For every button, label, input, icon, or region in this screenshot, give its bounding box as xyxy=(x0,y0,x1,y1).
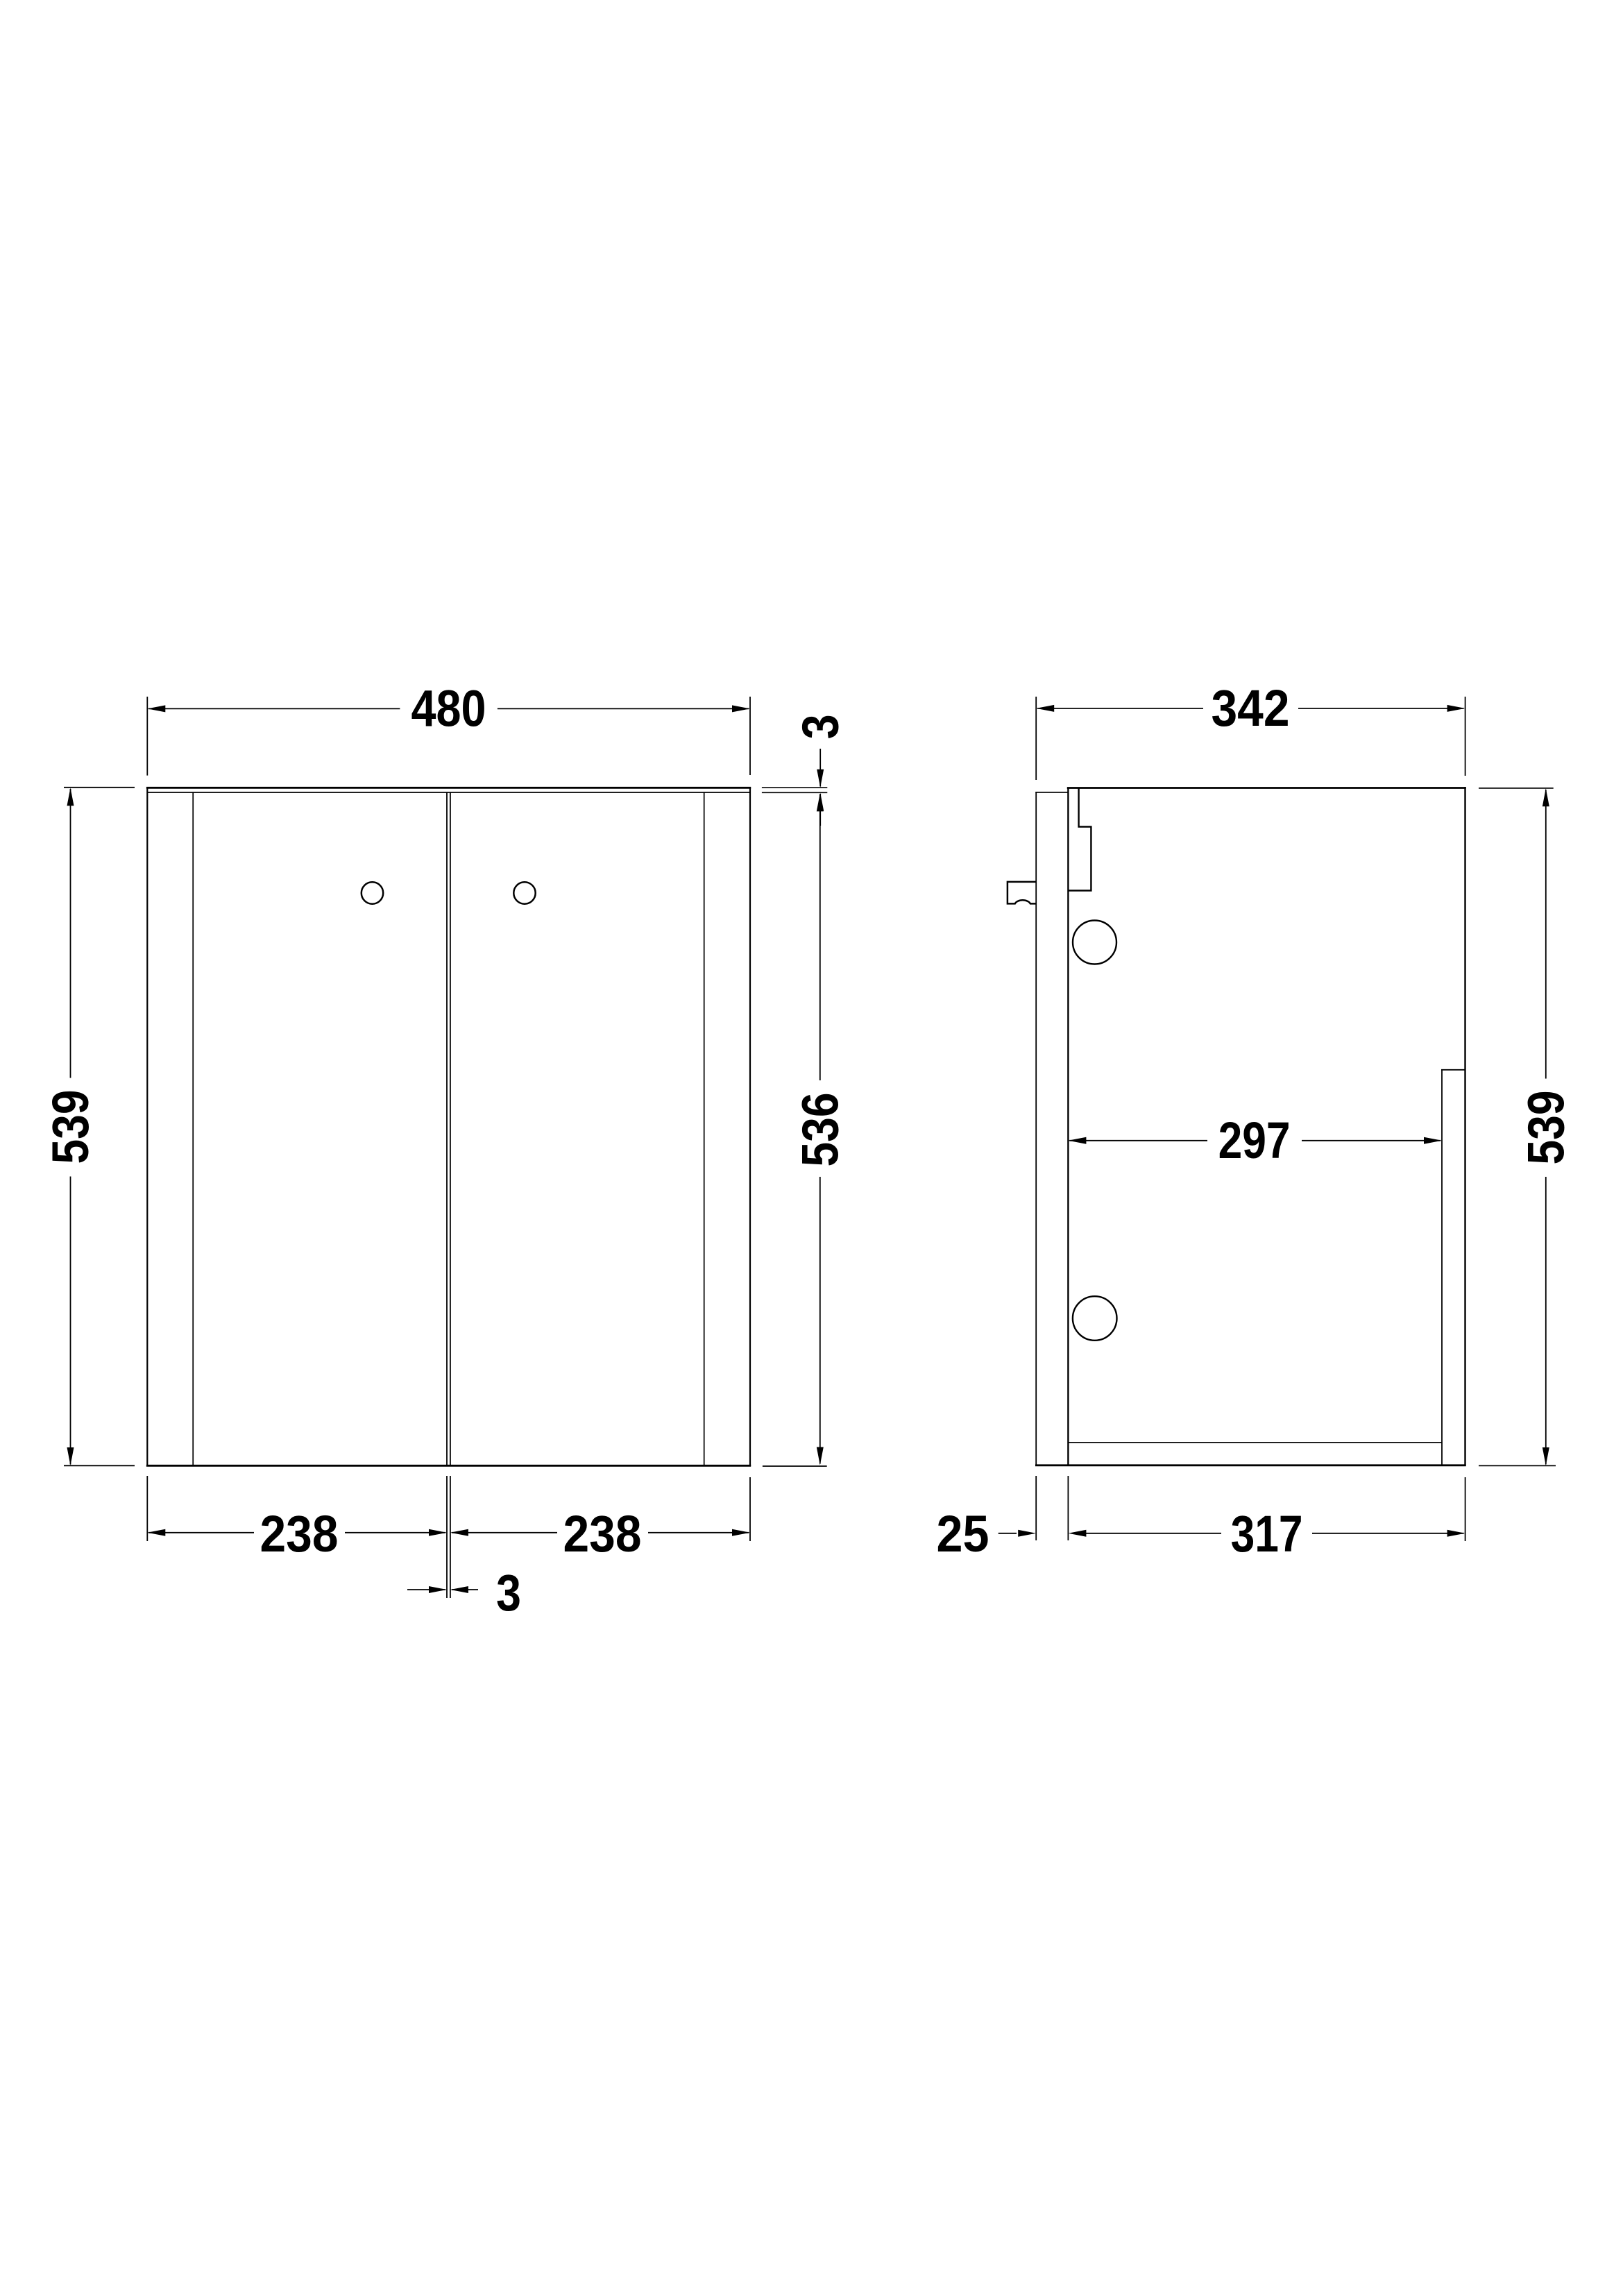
svg-text:539: 539 xyxy=(42,1090,99,1164)
svg-text:536: 536 xyxy=(792,1093,849,1167)
svg-text:238: 238 xyxy=(563,1505,642,1563)
svg-text:3: 3 xyxy=(496,1564,521,1622)
svg-text:238: 238 xyxy=(260,1505,339,1563)
svg-text:25: 25 xyxy=(937,1505,989,1563)
svg-text:480: 480 xyxy=(411,680,486,738)
svg-text:297: 297 xyxy=(1218,1112,1291,1169)
svg-text:342: 342 xyxy=(1212,679,1290,737)
svg-text:317: 317 xyxy=(1231,1505,1303,1563)
svg-text:539: 539 xyxy=(1518,1091,1575,1165)
svg-text:3: 3 xyxy=(792,714,849,739)
